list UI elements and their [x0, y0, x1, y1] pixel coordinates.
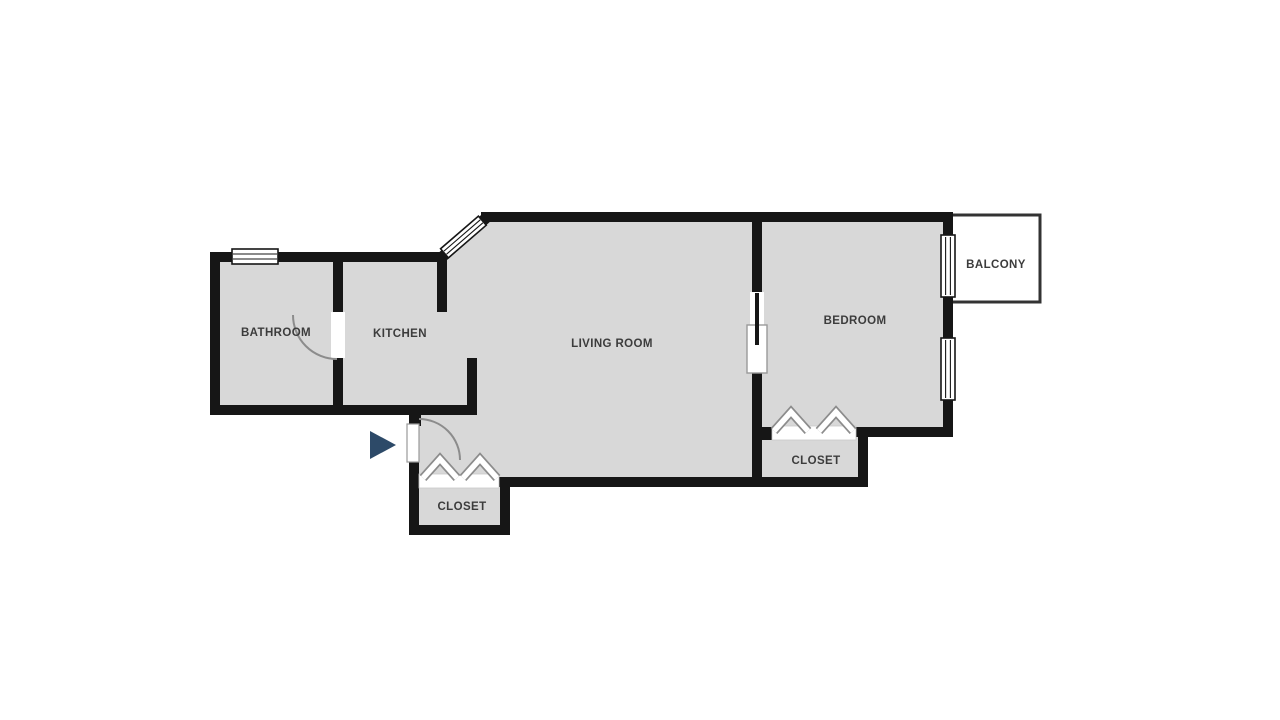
room-label-bedroom-closet: CLOSET	[791, 455, 840, 467]
bedroom-window	[941, 338, 955, 400]
room-label-bedroom: BEDROOM	[824, 315, 887, 327]
room-label-balcony: BALCONY	[966, 259, 1026, 271]
floor-plan-page: BATHROOM KITCHEN LIVING ROOM BEDROOM BAL…	[0, 0, 1280, 720]
room-label-entry-closet: CLOSET	[437, 501, 486, 513]
room-label-kitchen: KITCHEN	[373, 328, 427, 340]
floor-plan-drawing	[0, 0, 1280, 720]
room-label-living-room: LIVING ROOM	[571, 338, 653, 350]
bathroom-window	[232, 249, 278, 264]
bedroom-balcony-window	[941, 235, 955, 297]
room-label-bathroom: BATHROOM	[241, 327, 311, 339]
bedroom-pocket-door	[747, 292, 767, 373]
entrance-marker-icon	[370, 431, 396, 459]
